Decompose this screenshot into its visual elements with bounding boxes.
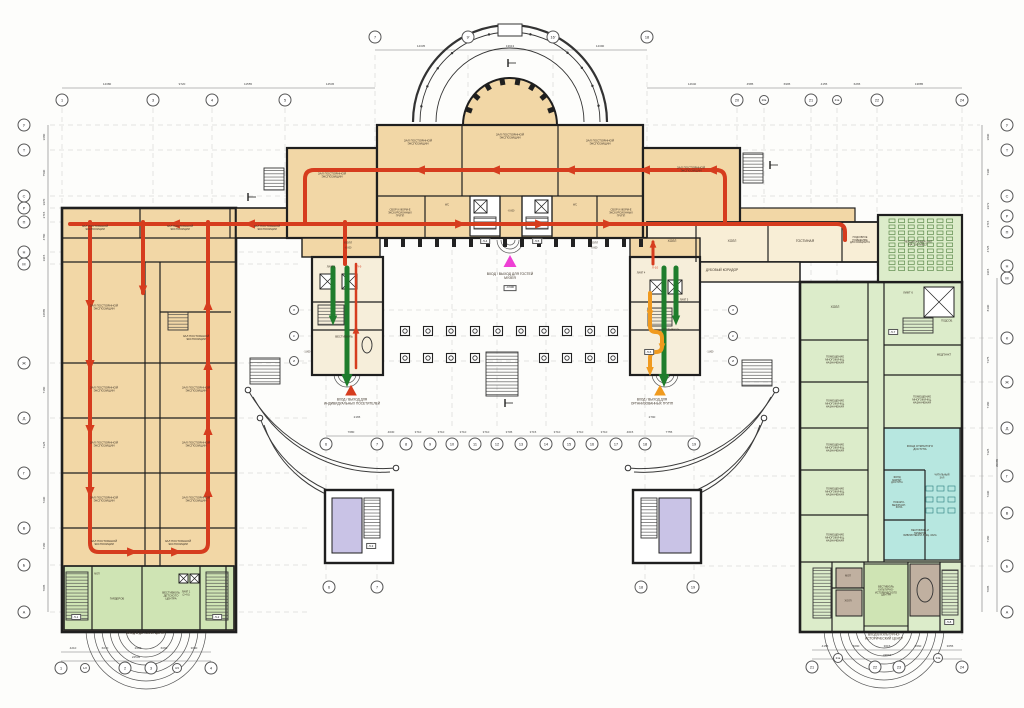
courtyard-column <box>424 354 433 363</box>
arch-dot <box>549 40 551 42</box>
entrance-steps <box>848 628 920 664</box>
arch-dot <box>451 52 453 54</box>
floor-plan-canvas: ЗАЛ ПОСТОЯННОЙ ЭКСПОЗИЦИИЗАЛ ПОСТОЯННОЙ … <box>0 0 1024 708</box>
arch-dot <box>420 105 422 107</box>
area-hall-left-tower <box>302 238 380 257</box>
colonnade-arc <box>248 390 396 469</box>
entrance-steps <box>102 629 190 673</box>
area-mop-room <box>836 568 862 588</box>
arch-dot <box>437 67 439 69</box>
courtyard-column <box>609 354 618 363</box>
courtyard-column <box>494 327 503 336</box>
portico-column <box>571 239 575 247</box>
portico-column <box>520 239 524 247</box>
arch-dot <box>581 67 583 69</box>
arc-node <box>245 387 251 393</box>
portico-column <box>605 239 609 247</box>
arch-apex-block <box>498 24 522 36</box>
arch-dot <box>591 85 593 87</box>
area-left-pavilion-room <box>332 498 362 553</box>
stair <box>168 312 188 330</box>
arch-dot <box>426 85 428 87</box>
portico-column <box>418 239 422 247</box>
colonnade-arc <box>628 390 776 469</box>
arc-node <box>761 415 767 421</box>
courtyard-column <box>563 327 572 336</box>
courtyard-column <box>540 327 549 336</box>
entrance-steps <box>824 628 944 688</box>
courtyard-column <box>424 327 433 336</box>
museum-guests-marker <box>504 255 517 267</box>
portico-column <box>639 239 643 247</box>
stair <box>641 498 657 538</box>
courtyard-column <box>609 327 618 336</box>
portico-column <box>537 239 541 247</box>
stair <box>206 572 228 620</box>
area-right-pavilion-room <box>659 498 691 553</box>
portico-column <box>435 239 439 247</box>
stair <box>264 168 284 190</box>
stair <box>743 153 763 183</box>
portico-column <box>554 239 558 247</box>
apse-hall <box>463 78 557 125</box>
portico-column <box>384 239 388 247</box>
courtyard-column <box>517 327 526 336</box>
area-library-zone <box>884 428 960 560</box>
entrance-steps <box>110 629 182 665</box>
courtyard-column <box>401 327 410 336</box>
arch-dot <box>566 52 568 54</box>
portico-column <box>486 239 490 247</box>
courtyard-column <box>540 354 549 363</box>
entrance-steps <box>86 629 206 689</box>
stair <box>813 568 831 618</box>
stair <box>942 570 958 615</box>
portico-column <box>503 239 507 247</box>
colonnade-arc <box>634 397 771 472</box>
arch-dot <box>529 33 531 35</box>
stair <box>364 498 380 538</box>
courtyard-column <box>401 354 410 363</box>
arc-node <box>393 465 399 471</box>
portico-column <box>588 239 592 247</box>
courtyard-column <box>471 354 480 363</box>
courtyard-column <box>563 354 572 363</box>
arc-node <box>773 387 779 393</box>
courtyard-column <box>586 354 595 363</box>
courtyard-column <box>586 327 595 336</box>
portico-column <box>452 239 456 247</box>
arch-dot <box>468 40 470 42</box>
stair <box>66 572 88 620</box>
courtyard-column <box>447 327 456 336</box>
area-hall-room-br <box>836 590 862 616</box>
area-vestibule-cultural <box>864 564 908 626</box>
arc-node <box>257 415 263 421</box>
arc-node <box>625 465 631 471</box>
stair <box>486 352 518 396</box>
courtyard-column <box>447 354 456 363</box>
portico-column <box>622 239 626 247</box>
stair <box>742 360 772 386</box>
courtyard-column <box>471 327 480 336</box>
colonnade-arc <box>253 397 390 472</box>
stair <box>903 318 933 333</box>
floor-plan-drawing <box>0 0 1024 708</box>
portico-column <box>401 239 405 247</box>
stair <box>250 358 280 384</box>
portico-column <box>469 239 473 247</box>
area-oval-room <box>910 564 940 616</box>
arch-dot <box>488 33 490 35</box>
arch-dot <box>597 105 599 107</box>
